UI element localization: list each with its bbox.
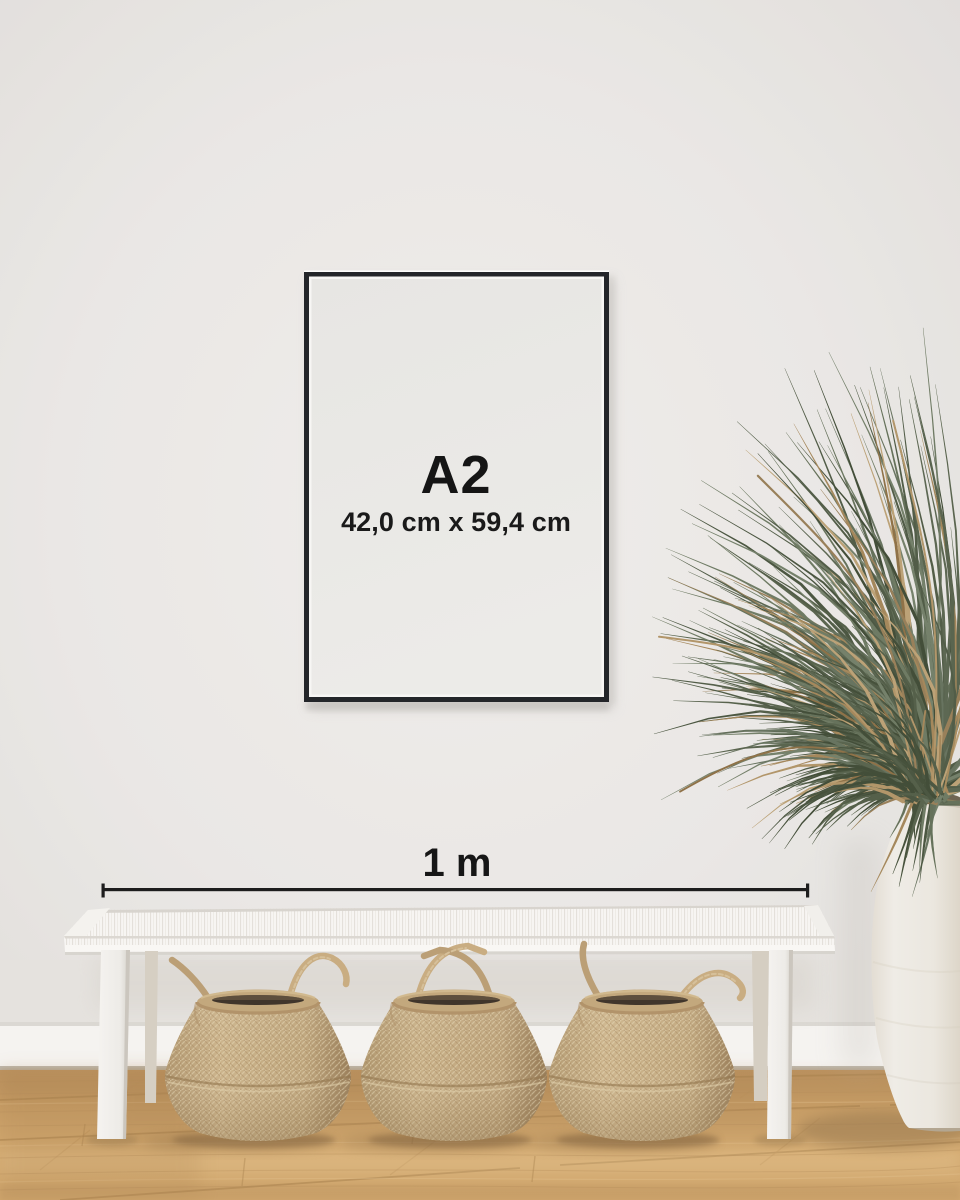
svg-text:1 m: 1 m [423,841,492,885]
svg-text:42,0 cm x 59,4 cm: 42,0 cm x 59,4 cm [341,507,571,537]
svg-text:A2: A2 [420,445,491,505]
